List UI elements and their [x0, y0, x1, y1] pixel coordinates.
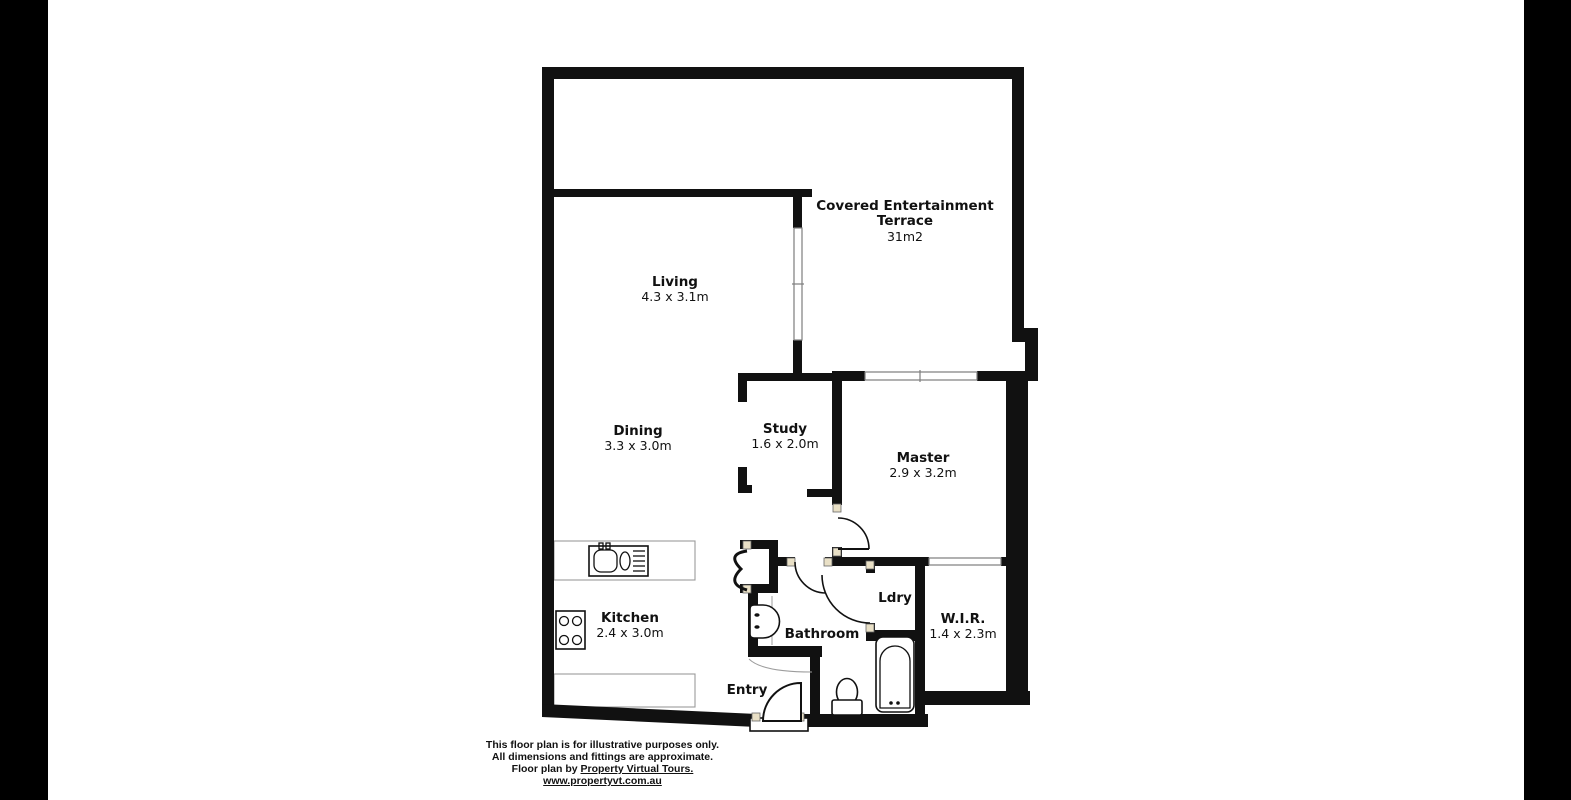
wall-segment: [977, 371, 1038, 381]
wall-segment: [832, 371, 865, 381]
disclaimer-line-4: www.propertyvt.com.au: [430, 775, 775, 787]
door-jamb: [866, 624, 874, 632]
counter-bottom: [554, 674, 695, 707]
windows: [792, 228, 1001, 565]
label-dining-dims: 3.3 x 3.0m: [604, 438, 671, 453]
door-swing-icon: [838, 518, 869, 549]
wall-segment: [738, 373, 842, 381]
disclaimer-line-1: This floor plan is for illustrative purp…: [430, 739, 775, 751]
toilet-button: [754, 613, 759, 617]
wall-segment: [542, 67, 1024, 79]
label-dining: Dining: [613, 423, 662, 439]
disclaimer-line-2: All dimensions and fittings are approxim…: [430, 751, 775, 763]
wall-segment: [825, 557, 929, 566]
door-jamb: [743, 541, 751, 549]
floor-plan-drawing: Covered Entertainment Terrace 31m2 Livin…: [0, 0, 1571, 800]
label-study-dims: 1.6 x 2.0m: [751, 436, 818, 451]
door-arc: [822, 575, 870, 623]
label-laundry: Ldry: [878, 590, 912, 606]
toilet-outline: [750, 605, 780, 638]
label-terrace-2: Terrace: [877, 213, 933, 229]
label-master-dims: 2.9 x 3.2m: [889, 465, 956, 480]
wall-segment: [1006, 381, 1028, 705]
bathtub-tap: [889, 701, 893, 705]
website-link: www.propertyvt.com.au: [543, 775, 662, 787]
label-terrace-area: 31m2: [887, 229, 923, 244]
door-jamb: [752, 713, 760, 721]
wall-segment: [542, 189, 812, 197]
label-master: Master: [897, 450, 950, 466]
double-sink-icon: [589, 543, 648, 576]
cooktop-icon: [556, 611, 585, 649]
wall-segment: [915, 557, 925, 705]
door-arc: [838, 518, 869, 549]
wall-segment: [793, 189, 802, 228]
wall-segment: [832, 381, 842, 505]
door-jamb: [787, 558, 795, 566]
label-terrace: Covered Entertainment: [816, 198, 994, 214]
door-jamb: [833, 504, 841, 512]
wall-segment: [1012, 67, 1024, 335]
floor-plan-page: Covered Entertainment Terrace 31m2 Livin…: [0, 0, 1571, 800]
disclaimer-line-3: Floor plan by Property Virtual Tours.: [430, 763, 775, 775]
entry-hall-curve: [749, 659, 812, 672]
door-swing-icon: [763, 683, 801, 721]
company-link: Property Virtual Tours.: [581, 763, 694, 775]
label-wir: W.I.R.: [941, 611, 986, 627]
door-jamb: [824, 558, 832, 566]
wall-segment: [738, 381, 747, 402]
door-swing-icon: [822, 575, 870, 623]
label-bathroom: Bathroom: [785, 626, 860, 642]
toilet-tank: [832, 700, 862, 715]
label-living: Living: [652, 274, 698, 290]
wall-segment: [793, 340, 802, 373]
label-living-dims: 4.3 x 3.1m: [641, 289, 708, 304]
disclaimer-line-3-prefix: Floor plan by: [512, 763, 581, 775]
toilet-icon: [750, 605, 780, 638]
door-jamb: [866, 561, 874, 569]
wall-segment: [542, 67, 554, 716]
label-entry: Entry: [727, 682, 768, 698]
label-wir-dims: 1.4 x 2.3m: [929, 626, 996, 641]
wall-segment: [810, 650, 820, 720]
disclaimer-footer: This floor plan is for illustrative purp…: [430, 739, 775, 787]
wall-segment: [804, 714, 928, 727]
window: [929, 558, 1001, 565]
toilet-icon: [832, 679, 862, 716]
wall-segment: [738, 485, 752, 493]
label-study: Study: [763, 421, 807, 437]
toilet-button: [754, 625, 759, 629]
wall-segment: [1001, 557, 1010, 566]
label-kitchen-dims: 2.4 x 3.0m: [596, 625, 663, 640]
bathtub-outline: [876, 637, 914, 712]
bathtub-tap: [896, 701, 900, 705]
bathtub-icon: [876, 637, 914, 712]
window: [865, 372, 977, 380]
label-kitchen: Kitchen: [601, 610, 659, 626]
